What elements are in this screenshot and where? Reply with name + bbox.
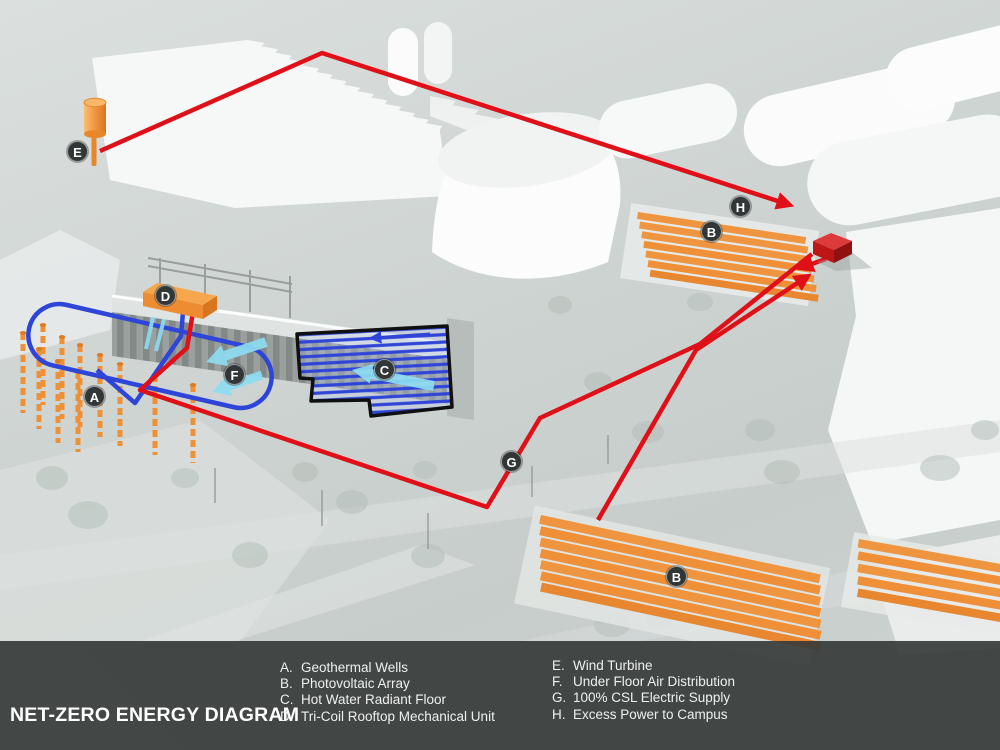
badge-pv-array-bottom: B	[666, 566, 687, 587]
badge-mechanical-unit: D	[155, 285, 176, 306]
legend-item-wind-turbine: E.Wind Turbine	[552, 658, 735, 674]
pv-array-top	[620, 203, 828, 308]
legend-left-column: A.Geothermal Wells B.Photovoltaic Array …	[280, 660, 495, 725]
legend-right-column: E.Wind Turbine F.Under Floor Air Distrib…	[552, 658, 735, 723]
badge-electric-supply: G	[501, 451, 522, 472]
badge-geothermal-wells: A	[84, 386, 105, 407]
badge-pv-array-top: B	[701, 221, 722, 242]
legend-item-mechanical-unit: D.Tri-Coil Rooftop Mechanical Unit	[280, 709, 495, 725]
diagram-canvas	[0, 0, 1000, 750]
wind-turbine	[84, 98, 106, 166]
bottom-bar	[0, 641, 1000, 750]
legend-item-excess-power: H.Excess Power to Campus	[552, 707, 735, 723]
legend-item-air-distribution: F.Under Floor Air Distribution	[552, 674, 735, 690]
badge-air-distribution: F	[224, 364, 245, 385]
bottom-bar-accent	[0, 641, 1000, 750]
badge-excess-power: H	[730, 196, 751, 217]
page-title: NET-ZERO ENERGY DIAGRAM	[10, 704, 299, 727]
legend-item-geothermal-wells: A.Geothermal Wells	[280, 660, 495, 676]
badge-radiant-floor: C	[374, 359, 395, 380]
net-zero-energy-diagram: A B B C D E F G H NET-ZERO ENERGY DIAGRA…	[0, 0, 1000, 750]
legend-item-photovoltaic-array: B.Photovoltaic Array	[280, 676, 495, 692]
legend-item-electric-supply: G.100% CSL Electric Supply	[552, 690, 735, 706]
badge-wind-turbine: E	[67, 141, 88, 162]
legend-item-radiant-floor: C.Hot Water Radiant Floor	[280, 692, 495, 708]
